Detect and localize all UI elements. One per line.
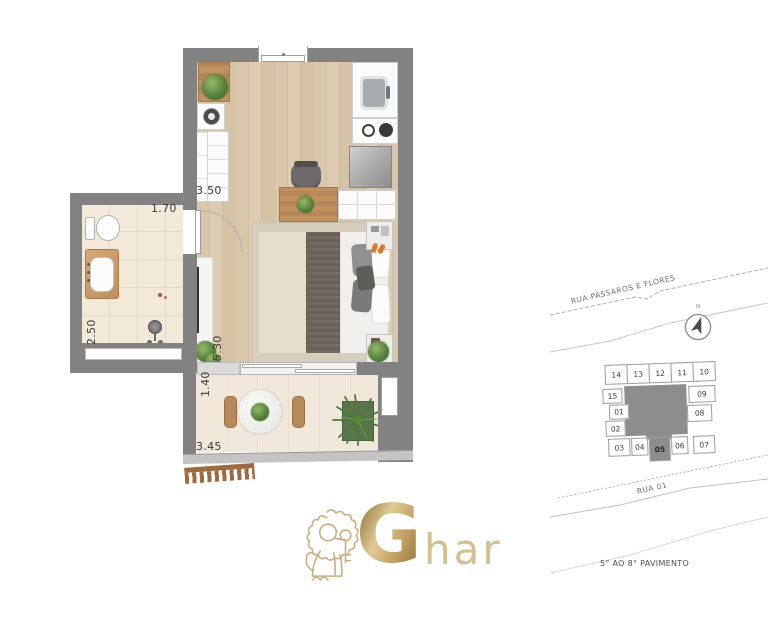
floor-plan: 3.50 1.70 2.50 5.30 1.40 3.45 [0, 0, 470, 500]
balcony-chair [292, 396, 305, 428]
faucet-icon [386, 86, 390, 99]
lion-key-logo-icon [295, 506, 363, 588]
desk-chair-back [294, 161, 318, 167]
desk-plant [297, 196, 314, 213]
key-plan-unit-10: 10 [692, 361, 716, 382]
faucet-dot [87, 279, 90, 282]
shower-stem [154, 334, 156, 341]
nightstand-plant [368, 341, 389, 362]
north-arrow-icon [683, 312, 713, 342]
nightstand-decor [371, 226, 379, 232]
dimension-label: 3.50 [196, 184, 222, 197]
cushion [355, 265, 375, 291]
pillow [370, 284, 391, 325]
kitchen-sink [360, 76, 388, 110]
dimension-label: 1.70 [151, 202, 177, 215]
key-plan-unit-05-highlighted: 05 [649, 437, 671, 462]
key-plan-unit-04: 04 [631, 437, 649, 456]
wall [398, 48, 413, 462]
key-plan-unit-01: 01 [609, 404, 630, 420]
key-plan-unit-03: 03 [608, 438, 631, 457]
floor-range-caption: 5° AO 8° PAVIMENTO [600, 559, 689, 568]
balcony-niche [381, 377, 398, 416]
sliding-door-panel [295, 369, 355, 373]
floor-plan-page: 3.50 1.70 2.50 5.30 1.40 3.45 RUA PÁSSAR… [0, 0, 768, 634]
site-map: RUA PÁSSAROS E FLORES RUA 01 5° AO 8° PA… [545, 250, 768, 590]
key-plan-unit-15: 15 [602, 388, 623, 404]
bath-accessory [158, 293, 162, 297]
key-plan-unit-07: 07 [693, 435, 716, 454]
stove-burner [362, 124, 375, 137]
key-plan-unit-11: 11 [670, 362, 694, 383]
key-plan-unit-13: 13 [626, 363, 650, 384]
bed-mattress [259, 232, 306, 353]
key-plan-unit-14: 14 [604, 364, 628, 385]
key-plan-unit-09: 09 [688, 385, 716, 403]
bath-accessory [164, 296, 167, 299]
key-plan-unit-02: 02 [605, 420, 626, 437]
key-plan: 14 13 12 11 10 15 01 02 09 08 03 04 05 0… [597, 355, 723, 465]
toilet-tank [85, 217, 95, 240]
balcony-chair [224, 396, 237, 428]
washer-drum-icon [203, 108, 220, 125]
brise-comb [184, 463, 255, 485]
kitchen-shelf [338, 190, 396, 220]
sliding-door-panel [242, 364, 302, 368]
dimension-label: 2.50 [85, 319, 98, 345]
north-label: N [696, 304, 700, 310]
door-swing-arc [183, 205, 248, 260]
sliding-door [240, 362, 357, 375]
wall [183, 373, 196, 462]
door-handle-icon [282, 53, 285, 56]
table-plant [251, 403, 269, 421]
entrance-door [261, 55, 305, 62]
logo-initial: G [356, 495, 422, 575]
dimension-label: 1.40 [199, 371, 212, 397]
vanity-basin [90, 257, 114, 292]
wall [306, 48, 413, 62]
faucet-dot [87, 263, 90, 266]
dimension-label: 3.45 [196, 440, 222, 453]
logo-text: har [424, 529, 503, 571]
brand-logo: G har [290, 500, 490, 595]
bathroom-window [85, 348, 182, 360]
shower-head [148, 320, 162, 334]
nightstand-decor [381, 226, 389, 236]
stove-burner [379, 123, 393, 137]
toilet-bowl [96, 215, 120, 241]
key-plan-unit-12: 12 [648, 363, 672, 384]
key-plan-unit-08: 08 [687, 404, 713, 422]
faucet-dot [87, 271, 90, 274]
dimension-label: 5.30 [211, 335, 224, 361]
bed-runner [306, 232, 340, 353]
fridge [349, 146, 392, 188]
plant [202, 74, 228, 100]
key-plan-unit-06: 06 [671, 436, 689, 455]
